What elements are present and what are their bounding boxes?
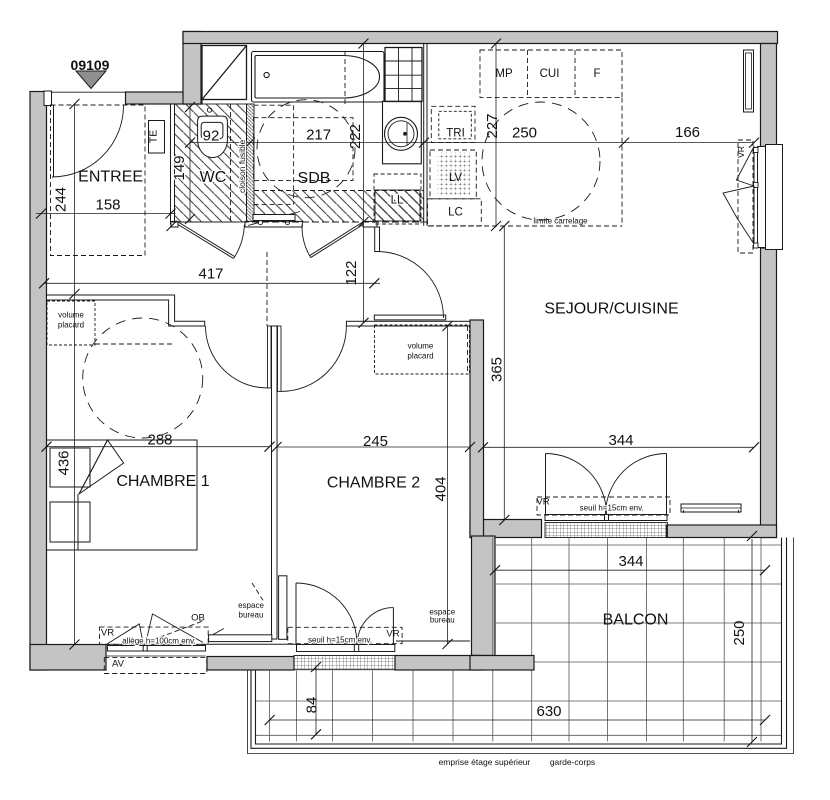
svg-text:bureau: bureau: [430, 616, 455, 625]
svg-text:SDB: SDB: [298, 170, 331, 187]
svg-text:VR: VR: [386, 629, 399, 640]
svg-text:TRI: TRI: [446, 128, 465, 140]
svg-text:placard: placard: [58, 321, 84, 330]
svg-text:166: 166: [675, 124, 700, 141]
svg-text:149: 149: [171, 155, 188, 180]
svg-text:222: 222: [347, 124, 364, 149]
svg-text:CHAMBRE 1: CHAMBRE 1: [116, 473, 209, 490]
svg-text:volume: volume: [408, 342, 434, 351]
svg-text:CHAMBRE 2: CHAMBRE 2: [327, 475, 420, 492]
svg-text:158: 158: [95, 197, 120, 214]
svg-text:allège h=100cm env.: allège h=100cm env.: [122, 637, 195, 646]
svg-text:VR: VR: [736, 146, 746, 158]
svg-text:VR: VR: [536, 497, 549, 508]
svg-text:garde-corps: garde-corps: [550, 757, 595, 767]
svg-text:417: 417: [198, 266, 223, 283]
svg-text:CUI: CUI: [540, 68, 560, 80]
svg-text:OB: OB: [191, 613, 205, 624]
svg-text:92: 92: [203, 128, 220, 145]
svg-text:630: 630: [536, 703, 561, 720]
svg-text:344: 344: [618, 553, 643, 570]
svg-text:288: 288: [147, 431, 172, 448]
svg-text:F: F: [593, 68, 600, 80]
svg-text:bureau: bureau: [239, 611, 264, 620]
svg-text:250: 250: [512, 125, 537, 142]
svg-text:VR: VR: [101, 628, 114, 639]
svg-text:LL: LL: [391, 195, 404, 207]
svg-text:ENTREE: ENTREE: [78, 169, 143, 186]
svg-text:245: 245: [363, 433, 388, 450]
svg-text:436: 436: [56, 450, 73, 475]
svg-text:TE: TE: [148, 130, 160, 143]
svg-text:placard: placard: [407, 352, 433, 361]
svg-text:217: 217: [306, 127, 331, 144]
svg-text:WC: WC: [200, 169, 227, 186]
svg-text:AV: AV: [112, 659, 125, 670]
svg-text:volume: volume: [58, 311, 84, 320]
svg-text:espace: espace: [238, 601, 264, 610]
svg-text:404: 404: [433, 476, 450, 501]
svg-text:limite carrelage: limite carrelage: [533, 217, 588, 226]
svg-text:BALCON: BALCON: [603, 612, 669, 629]
svg-text:84: 84: [304, 697, 321, 714]
svg-text:365: 365: [489, 357, 506, 382]
svg-text:122: 122: [343, 260, 360, 285]
svg-text:cloison fusible: cloison fusible: [237, 139, 247, 193]
svg-text:227: 227: [484, 113, 501, 138]
svg-text:LC: LC: [448, 207, 463, 219]
svg-text:emprise étage supérieur: emprise étage supérieur: [439, 757, 531, 767]
svg-text:seuil h=15cm env.: seuil h=15cm env.: [580, 504, 644, 513]
svg-text:SEJOUR/CUISINE: SEJOUR/CUISINE: [544, 301, 678, 318]
svg-text:seuil h=15cm env.: seuil h=15cm env.: [308, 636, 372, 645]
svg-text:244: 244: [53, 187, 70, 212]
svg-text:344: 344: [608, 432, 633, 449]
svg-text:250: 250: [731, 620, 748, 645]
svg-text:LV: LV: [449, 172, 463, 184]
svg-text:MP: MP: [495, 68, 513, 80]
